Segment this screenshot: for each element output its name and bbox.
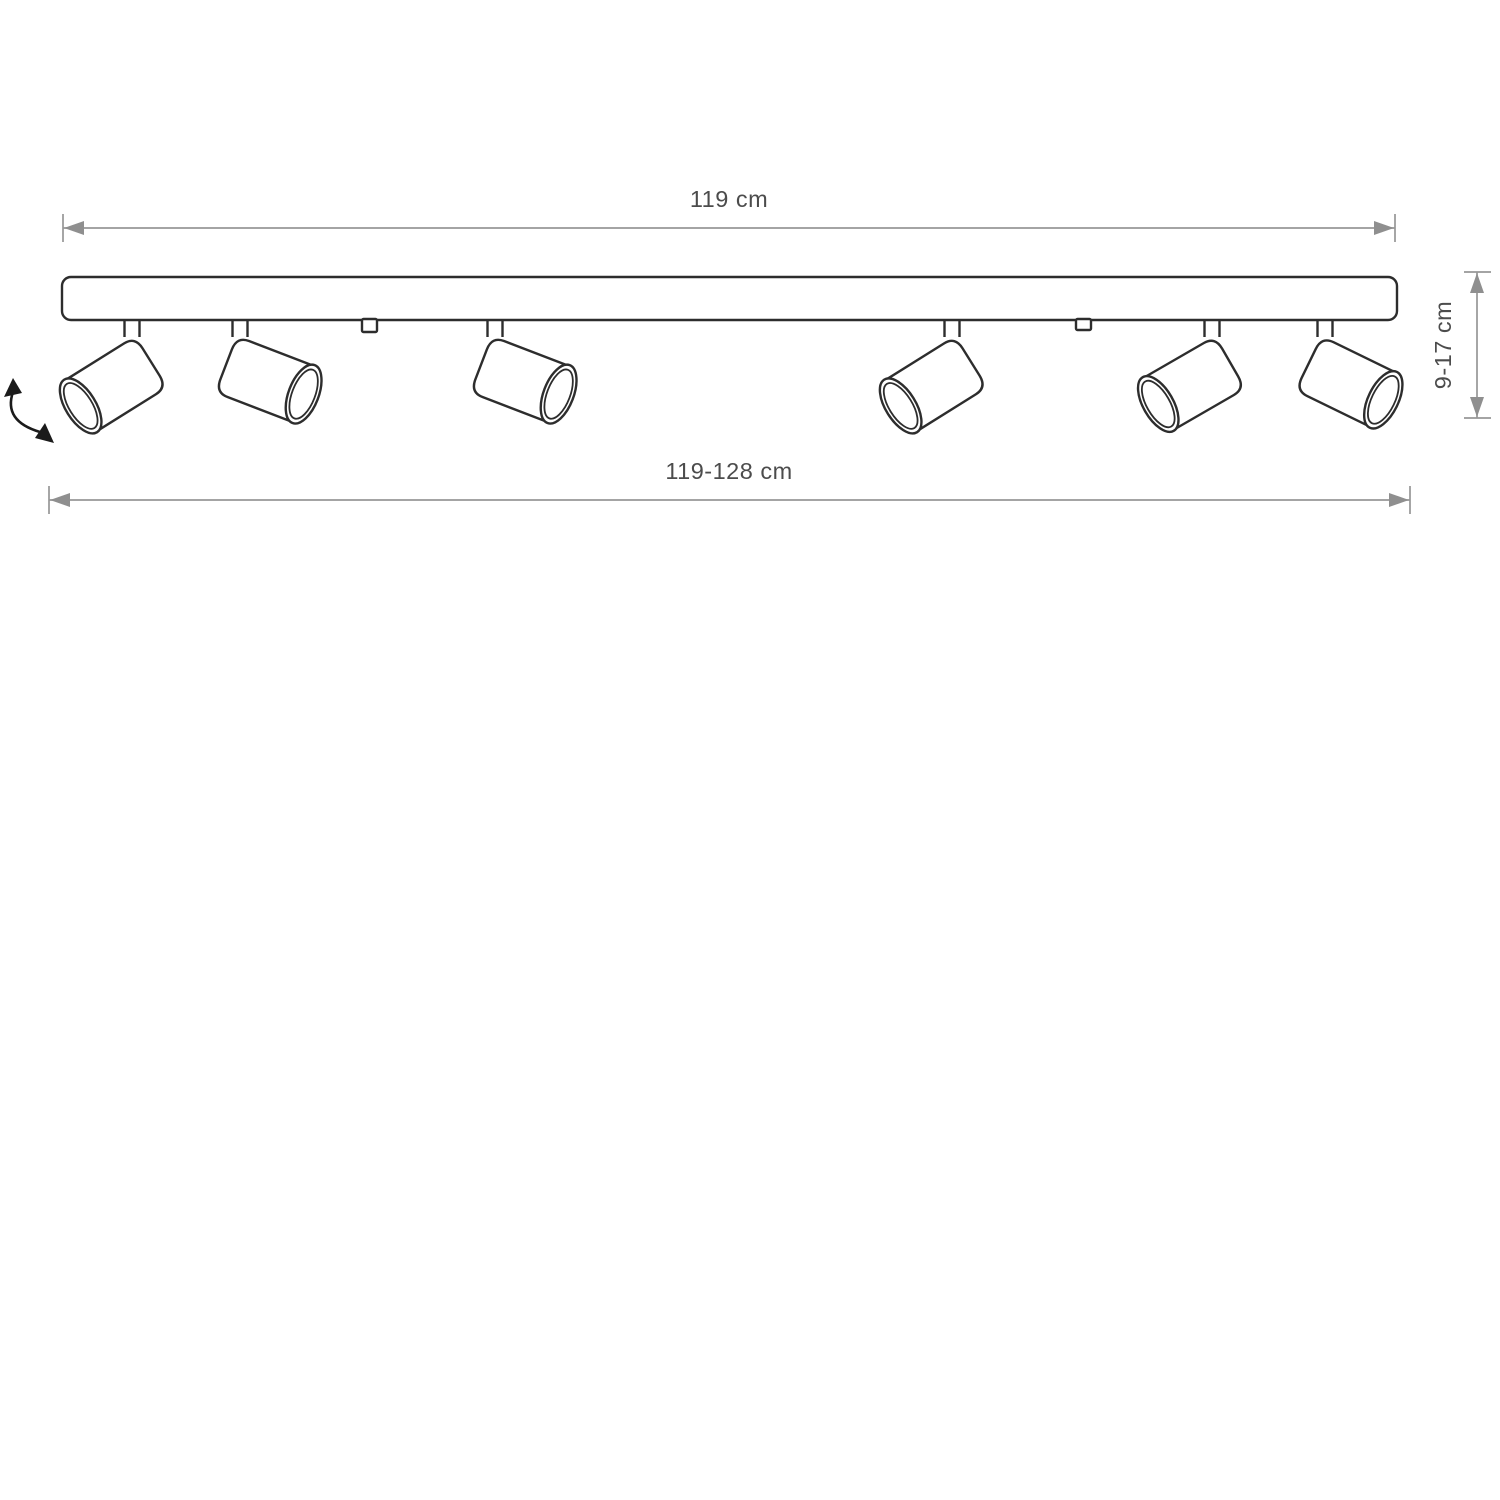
mounting-tab-2 — [1076, 319, 1091, 330]
spotlight-6 — [1295, 319, 1410, 434]
height-dim-arrow-down-icon — [1470, 397, 1484, 417]
spotlight-2 — [215, 319, 329, 428]
top-dim-arrow-left-icon — [64, 221, 84, 235]
mounting-tab-1 — [362, 319, 377, 332]
spotlight-3 — [470, 319, 584, 428]
bottom-width-dimension: 119-128 cm — [49, 458, 1410, 514]
height-dim-arrow-up-icon — [1470, 273, 1484, 293]
spotlight-5 — [1130, 319, 1246, 438]
spotlight-cylinder — [1130, 336, 1246, 439]
spotlight-cylinder — [470, 335, 584, 428]
spotlight-stem — [233, 319, 248, 337]
spotlight-1 — [52, 319, 168, 440]
height-label: 9-17 cm — [1430, 301, 1456, 389]
bottom-dim-arrow-left-icon — [50, 493, 70, 507]
spotlight-stem — [945, 319, 960, 337]
spotlight-4 — [872, 319, 988, 440]
rotation-arc — [11, 392, 40, 432]
fixture — [52, 277, 1411, 440]
top-width-label: 119 cm — [690, 186, 768, 212]
ceiling-bar — [62, 277, 1397, 320]
bottom-width-label: 119-128 cm — [665, 458, 792, 484]
rotation-arrowhead-bottom — [35, 423, 54, 443]
spotlight-stem — [488, 319, 503, 337]
rotation-arrow-icon — [4, 378, 54, 443]
top-width-dimension: 119 cm — [63, 186, 1395, 242]
rotation-arrowhead-top — [4, 378, 22, 397]
bottom-dim-arrow-right-icon — [1389, 493, 1409, 507]
spotlight-cylinder — [872, 336, 988, 441]
spotlight-stem — [1205, 319, 1220, 337]
top-dim-arrow-right-icon — [1374, 221, 1394, 235]
spotlight-stem — [125, 319, 140, 337]
spotlight-stem — [1318, 319, 1333, 337]
spotlight-cylinder — [52, 336, 168, 441]
height-dimension: 9-17 cm — [1430, 272, 1491, 418]
dimension-drawing: 119 cm — [0, 0, 1500, 1500]
spotlight-cylinder — [215, 335, 329, 428]
spotlight-cylinder — [1295, 336, 1410, 435]
